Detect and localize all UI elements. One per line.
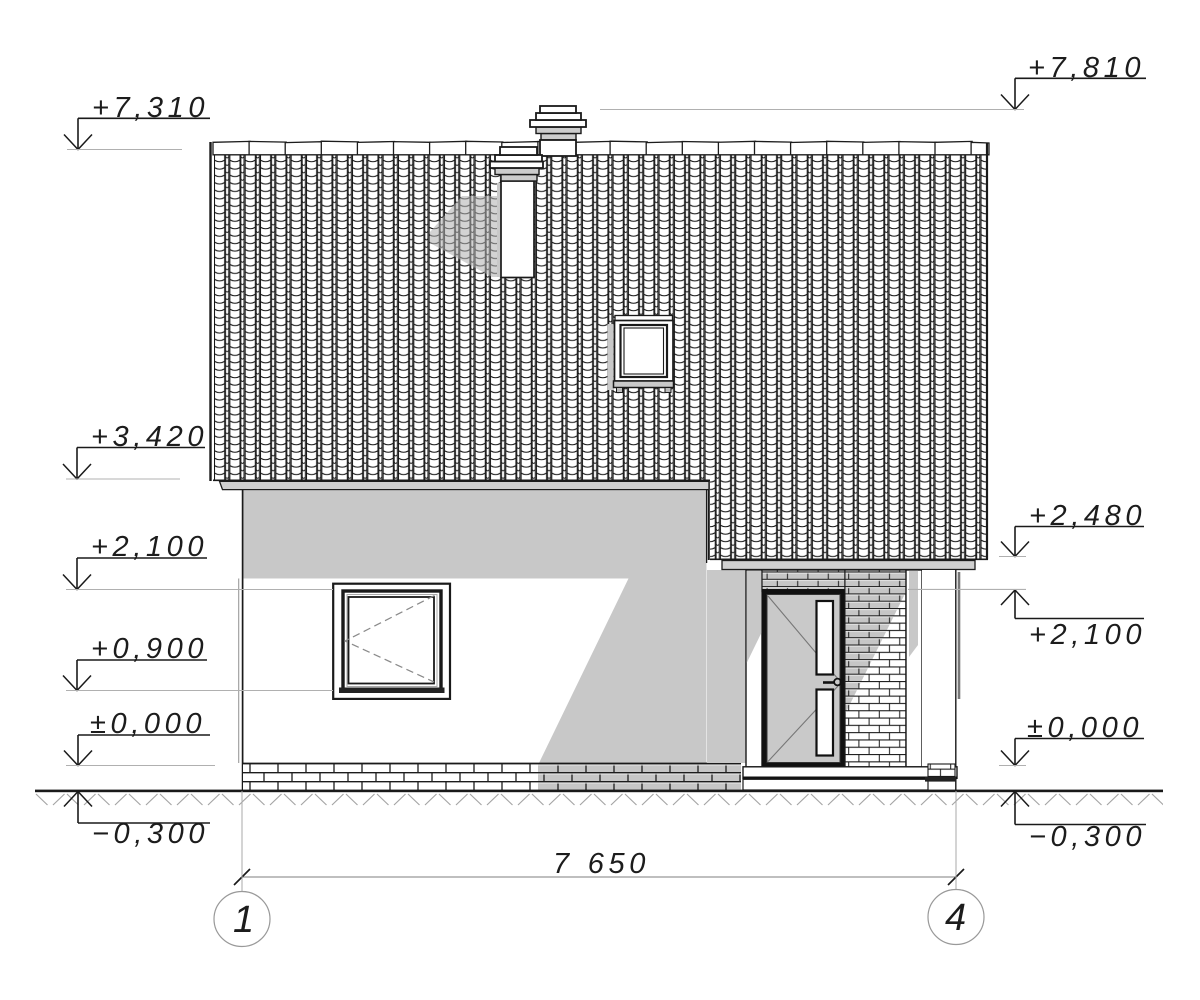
svg-text:+3,420: +3,420 bbox=[91, 421, 208, 453]
svg-text:4: 4 bbox=[945, 897, 966, 939]
svg-text:±0,000: ±0,000 bbox=[90, 708, 206, 740]
svg-text:+2,100: +2,100 bbox=[1029, 619, 1146, 651]
svg-text:−0,300: −0,300 bbox=[92, 818, 209, 850]
svg-text:1: 1 bbox=[233, 899, 254, 941]
svg-text:+2,480: +2,480 bbox=[1029, 500, 1146, 532]
svg-text:−0,300: −0,300 bbox=[1029, 821, 1146, 853]
svg-text:+7,810: +7,810 bbox=[1028, 52, 1145, 84]
svg-text:±0,000: ±0,000 bbox=[1027, 712, 1143, 744]
svg-text:+0,900: +0,900 bbox=[91, 633, 208, 665]
svg-text:+7,310: +7,310 bbox=[92, 92, 209, 124]
svg-text:7 650: 7 650 bbox=[553, 848, 650, 880]
svg-text:+2,100: +2,100 bbox=[91, 531, 208, 563]
